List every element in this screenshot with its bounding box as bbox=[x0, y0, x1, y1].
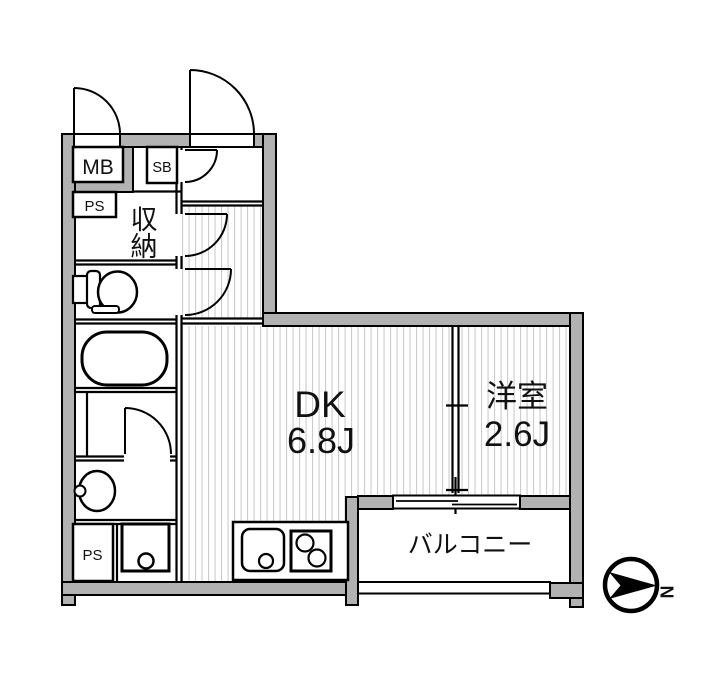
washbasin-faucet-icon bbox=[75, 486, 86, 497]
kitchen-faucet-icon bbox=[259, 554, 273, 568]
western-room-name: 洋室 bbox=[486, 379, 548, 414]
shoe-box-label: SB bbox=[152, 160, 171, 176]
wall-balcony-corner bbox=[550, 583, 583, 598]
compass: N bbox=[605, 559, 677, 611]
washing-machine-drain-icon bbox=[139, 554, 154, 569]
storage-label-char1: 収 bbox=[131, 205, 158, 235]
western-room-size: 2.6J bbox=[484, 415, 550, 454]
stove-burner-2 bbox=[309, 550, 326, 567]
north-label: N bbox=[657, 586, 677, 599]
balcony-railing bbox=[358, 582, 550, 594]
balcony-window bbox=[393, 496, 520, 509]
corridor-floor bbox=[182, 205, 263, 318]
toilet-base bbox=[92, 306, 119, 313]
door-entrance bbox=[190, 70, 254, 134]
bathtub bbox=[82, 332, 167, 385]
pipe-space-upper-label: PS bbox=[84, 198, 104, 215]
wall-bottom bbox=[62, 582, 346, 595]
floorplan-canvas: MB SB PS 収 納 PS DK 6.8J 洋室 2.6J バルコニー N bbox=[0, 0, 720, 685]
wall-right bbox=[570, 313, 583, 607]
wall-window-stub-right bbox=[520, 496, 570, 509]
storage-label-char2: 納 bbox=[131, 232, 158, 262]
door-mb bbox=[74, 88, 120, 134]
mb-doorway bbox=[74, 134, 120, 147]
dk-room-size: 6.8J bbox=[287, 420, 355, 461]
kitchen bbox=[233, 522, 348, 580]
north-label-group: N bbox=[657, 586, 677, 599]
dk-room-name: DK bbox=[294, 384, 346, 425]
floorplan-drawing: MB SB PS 収 納 PS DK 6.8J 洋室 2.6J バルコニー N bbox=[0, 0, 720, 685]
balcony-label: バルコニー bbox=[408, 531, 533, 559]
wall-mid-horizontal bbox=[263, 313, 583, 326]
meter-box-label: MB bbox=[82, 156, 114, 179]
pipe-space-lower-label: PS bbox=[82, 547, 102, 564]
door-washroom bbox=[125, 408, 171, 454]
stove-burner-1 bbox=[297, 535, 314, 552]
door-shoebox bbox=[185, 150, 217, 182]
entrance-doorway bbox=[190, 134, 254, 147]
wall-corridor-right bbox=[263, 134, 276, 318]
wall-window-stub-left bbox=[358, 496, 393, 509]
